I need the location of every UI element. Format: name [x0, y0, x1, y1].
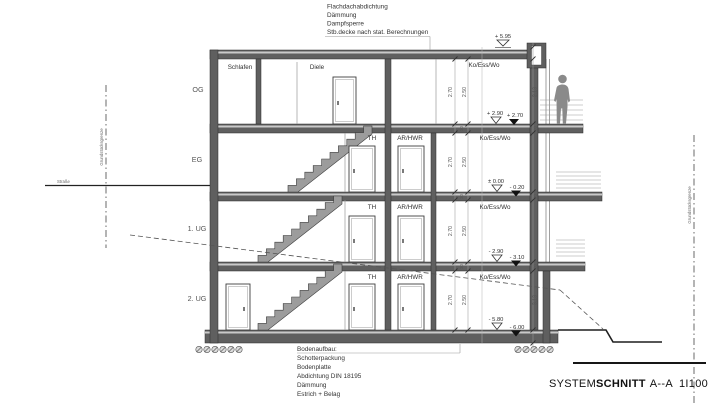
door-eg-th: [349, 146, 375, 192]
stair-flight-ug1: [258, 196, 342, 262]
interior-wall-right: [431, 133, 436, 330]
dim-eg-b: 2.50: [462, 157, 468, 167]
dim-eg-a: 2.70: [448, 157, 454, 167]
door-ug2-ar: [398, 284, 424, 330]
eg-floor-slab: [210, 192, 602, 201]
title-bold: SCHNITT: [596, 378, 646, 390]
og-floor-slab: [210, 124, 583, 133]
soil-hatch: [196, 346, 553, 352]
dim-right-slab-og: 20: [533, 126, 538, 131]
dim-ug2-b: 2.50: [462, 295, 468, 305]
level-og-fin: + 2.70: [507, 113, 523, 119]
exterior-wall-left: [210, 50, 218, 343]
room-ug2-koesswo: Ko/Ess/Wo: [479, 274, 511, 281]
dim-right-og: 2.13: [533, 87, 539, 97]
dim-ug1-b: 2.50: [462, 226, 468, 236]
roof-note-line4: Stb.decke nach stat. Berechnungen: [327, 29, 429, 36]
door-ug1-th: [349, 216, 375, 262]
level-og-raw: + 2.90: [487, 111, 503, 117]
roof-note: Flachdachabdichtung Dämmung Dampfsperre …: [325, 4, 430, 51]
storey-label-ug1: 1. UG: [188, 224, 207, 233]
dim-ug1-a: 2.70: [448, 226, 454, 236]
retaining-wall-right: [543, 271, 550, 343]
balcony-railing-eg: [556, 172, 601, 188]
interior-wall-mid: [385, 59, 391, 330]
level-roof: + 5.95: [495, 34, 511, 40]
dim-slab-og: 20: [459, 126, 464, 131]
room-ug1-arhwr: AR/HWR: [397, 204, 423, 211]
section-drawing: Straße Grundstücksgrenze Grundstücksgren…: [0, 0, 720, 405]
storey-label-ug2: 2. UG: [188, 294, 207, 303]
street-label: Straße: [57, 179, 71, 184]
room-eg-koesswo: Ko/Ess/Wo: [479, 135, 511, 142]
room-ug2-arhwr: AR/HWR: [397, 274, 423, 281]
door-og-diele: [333, 77, 356, 124]
level-ug2-fin: - 6.00: [510, 325, 525, 331]
room-ug1-koesswo: Ko/Ess/Wo: [479, 204, 511, 211]
roof-note-line2: Dämmung: [327, 12, 357, 19]
dim-slab-eg: 20: [459, 194, 464, 199]
level-eg-raw: ± 0.00: [488, 179, 504, 185]
boundary-left-label: Grundstücksgrenze: [99, 128, 104, 166]
title-normal: SYSTEM: [549, 378, 596, 390]
door-eg-ar: [398, 146, 424, 192]
floor-note-line6: Estrich + Belag: [297, 391, 341, 398]
room-og-diele: Diele: [310, 64, 325, 71]
dim-right-slab-eg: 20: [533, 194, 538, 199]
person-figure: [554, 75, 570, 124]
floor-note-line3: Bodenplatte: [297, 364, 332, 371]
og-bedroom-wall: [256, 59, 261, 124]
roof-note-line1: Flachdachabdichtung: [327, 4, 388, 11]
dim-og-a: 2.70: [448, 87, 454, 97]
title-section: A--A: [650, 378, 674, 390]
level-ug1-raw: - 2.90: [489, 249, 504, 255]
stair-flight-ug2: [258, 264, 342, 330]
door-ug2-th: [349, 284, 375, 330]
level-ug1-fin: - 3.10: [510, 255, 525, 261]
room-og-koesswo: Ko/Ess/Wo: [468, 62, 500, 69]
dim-og-b: 2.50: [462, 87, 468, 97]
ground-line-right: [558, 330, 662, 342]
roof-note-line3: Dampfsperre: [327, 21, 364, 28]
balcony-railing-ug1: [556, 240, 585, 256]
storey-labels: OG EG 1. UG 2. UG: [188, 85, 207, 303]
floor-note-line1: Bodenaufbau:: [297, 346, 337, 353]
floor-note-line5: Dämmung: [297, 382, 327, 389]
dim-right-slab-ug1: 20: [533, 264, 538, 269]
boundary-right-label: Grundstücksgrenze: [687, 186, 692, 224]
door-ug1-ar: [398, 216, 424, 262]
room-og-schlafen: Schlafen: [228, 64, 253, 71]
floor-note-line2: Schotterpackung: [297, 355, 345, 362]
drawing-title: SYSTEMSCHNITTA--A1I100: [549, 378, 708, 390]
storey-label-og: OG: [192, 85, 204, 94]
title-scale: 1I100: [679, 378, 708, 390]
dim-ug2-a: 2.70: [448, 295, 454, 305]
level-eg-fin: - 0.20: [510, 185, 525, 191]
room-eg-th: TH: [368, 135, 377, 142]
ug1-floor-slab: [210, 262, 585, 271]
room-eg-arhwr: AR/HWR: [397, 135, 423, 142]
floor-note: Bodenaufbau: Schotterpackung Bodenplatte…: [297, 344, 460, 398]
drawing-svg: Straße Grundstücksgrenze Grundstücksgren…: [0, 0, 720, 405]
floor-note-line4: Abdichtung DIN 18195: [297, 373, 362, 380]
room-ug1-th: TH: [368, 204, 377, 211]
room-ug2-th: TH: [368, 274, 377, 281]
dim-slab-ug1: 20: [459, 264, 464, 269]
level-ug2-raw: - 5.80: [489, 317, 504, 323]
storey-label-eg: EG: [192, 155, 203, 164]
dim-right-ug2: 3.13: [533, 295, 539, 305]
door-ug2-left: [226, 284, 250, 330]
elevation-markers: + 5.95 + 2.90 + 2.70 ± 0.00 - 0.20 - 2.9…: [487, 34, 525, 337]
